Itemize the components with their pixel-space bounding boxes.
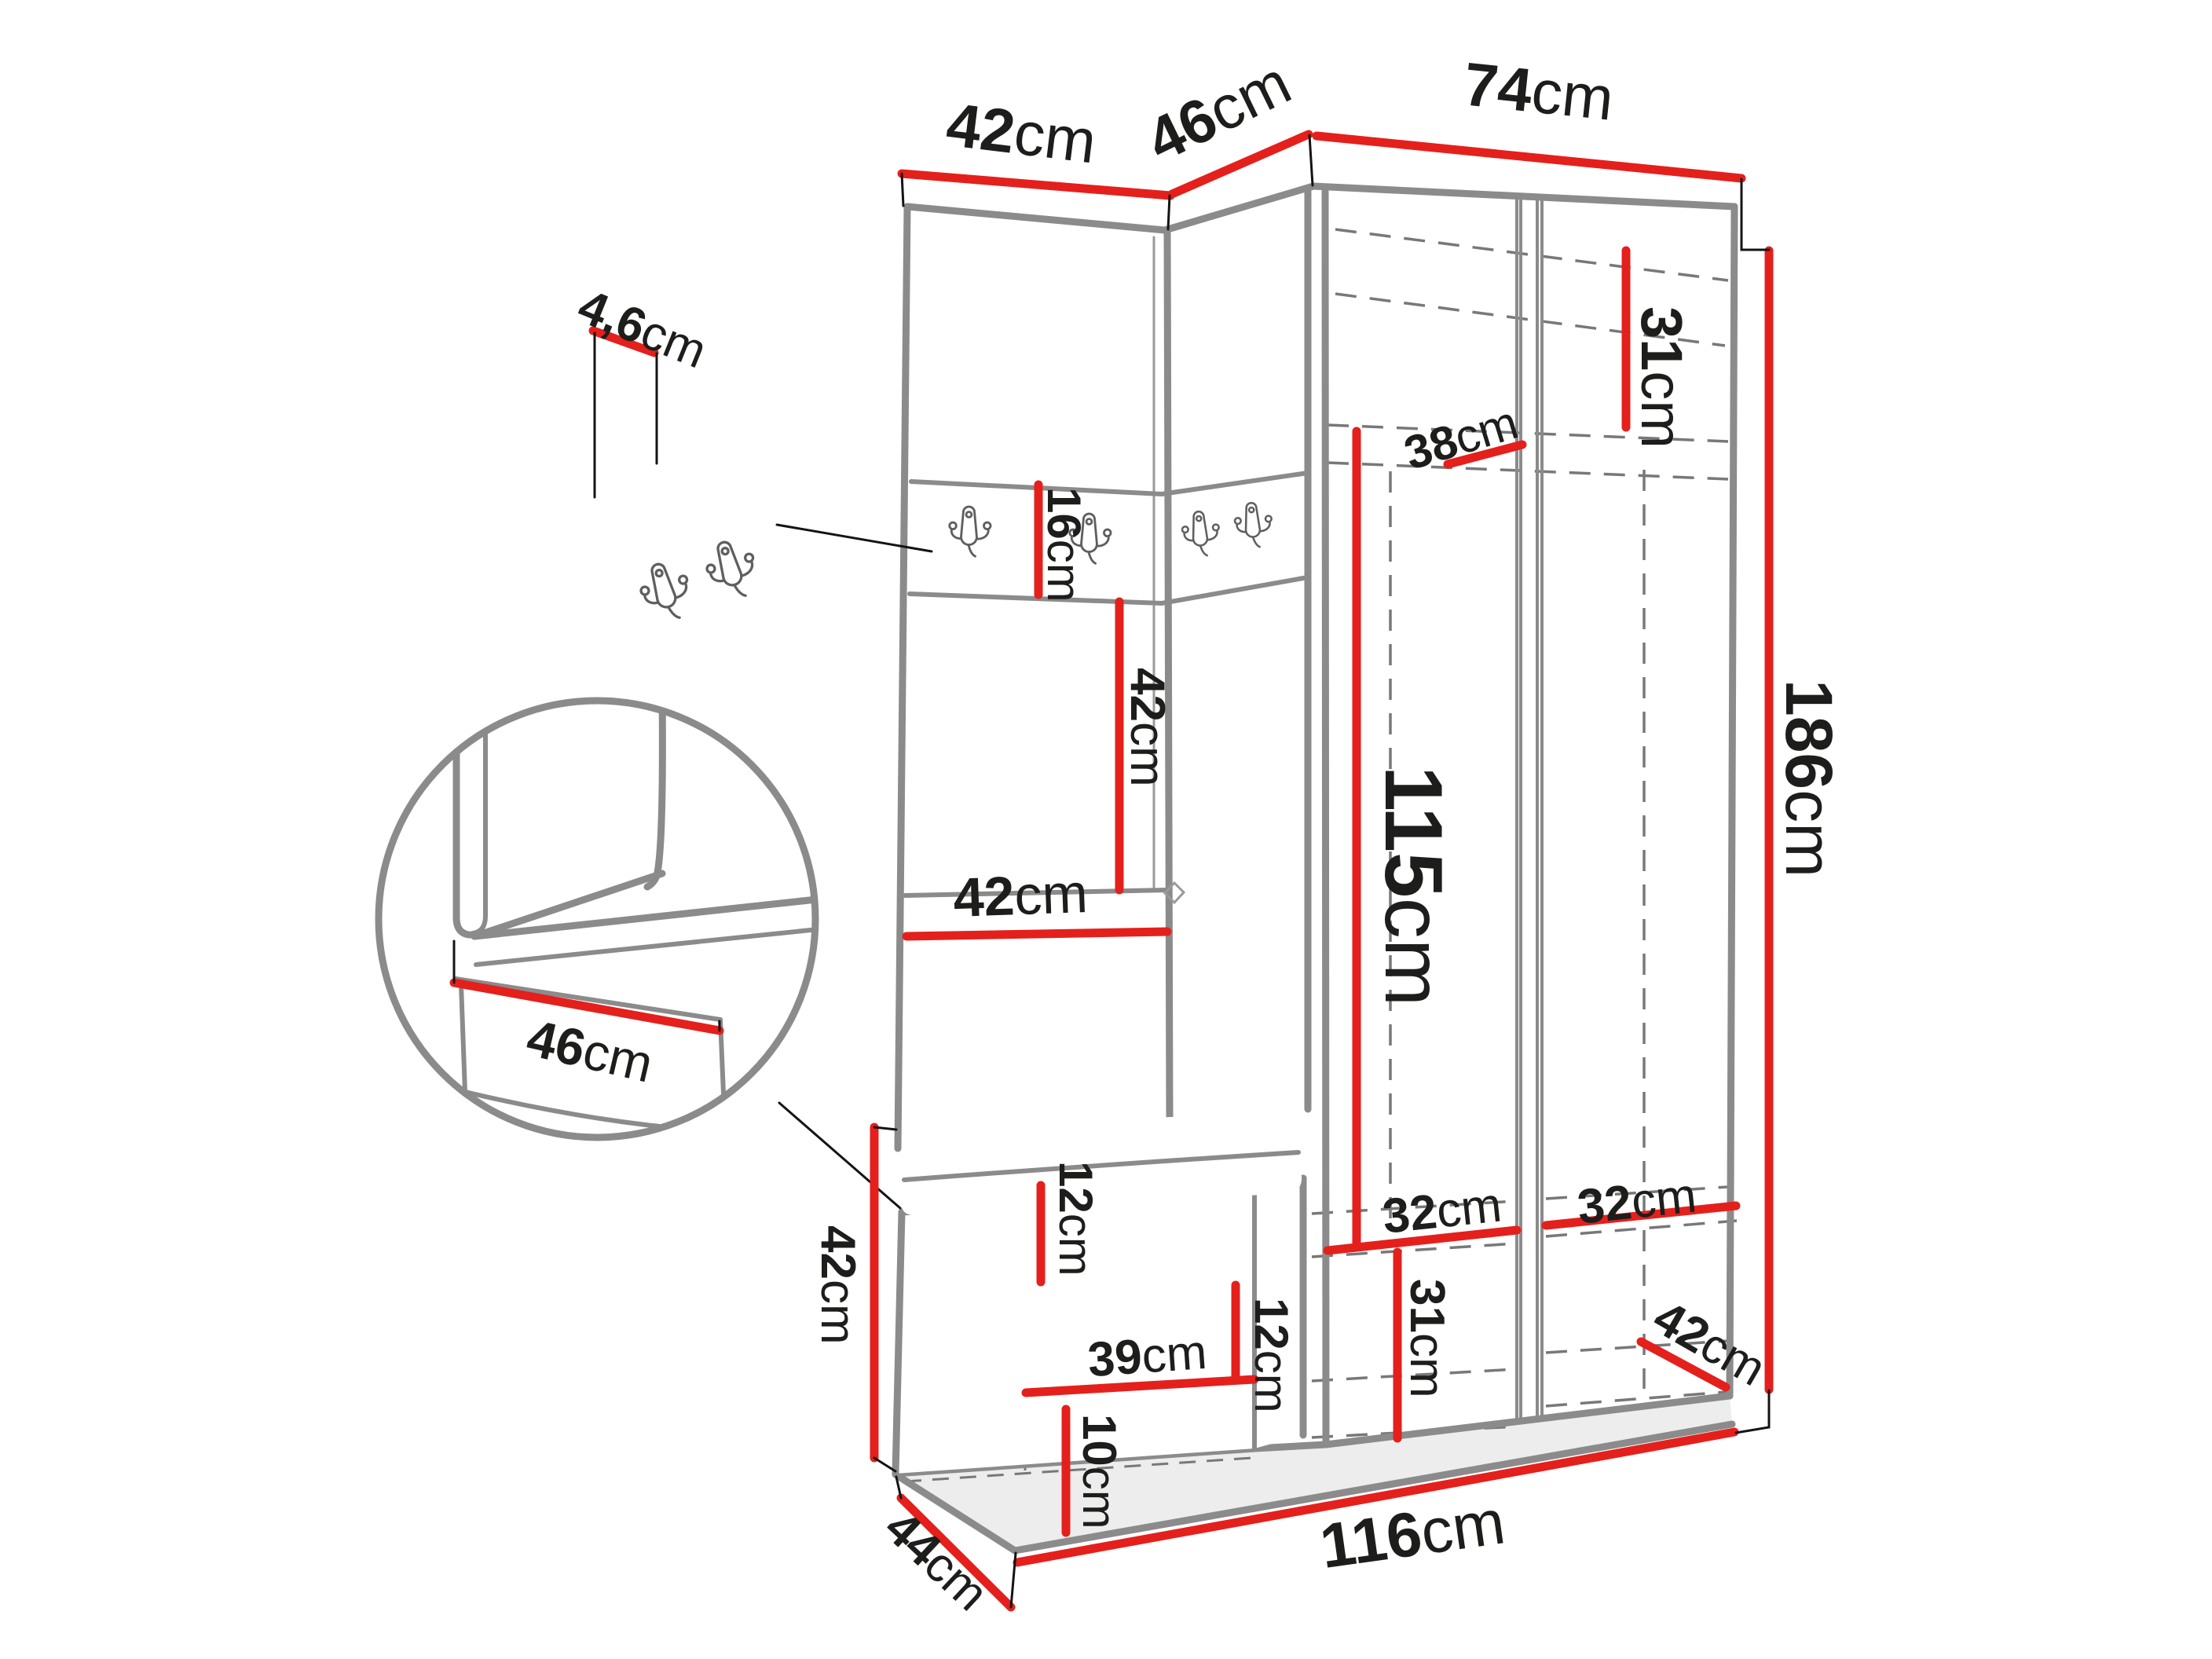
label-bench-top-thickness: 12cm [1049,1161,1102,1276]
label-top-left-width: 42cm [943,90,1100,177]
label-hook-strip-height: 16cm [1038,487,1090,602]
label-bench-height: 42cm [811,1225,865,1345]
label-top-compartment-height: 31cm [1629,306,1694,449]
label-upper-shelf-gap: 42cm [1120,668,1174,787]
edge-wardrobe-right [1730,207,1734,1396]
label-bench-inner-width: 39cm [1086,1325,1209,1387]
label-top-corner-width: 46cm [1136,47,1301,175]
dim-line-42-shelf [906,932,1167,936]
hook-panel-detail [588,423,773,694]
label-middle-shelf-width: 42cm [952,862,1089,928]
pointer-circle-to-bench [779,1103,900,1208]
label-bench-plinth-height: 10cm [1073,1414,1126,1529]
hook-panel-side [588,499,613,694]
hook-panel-front [609,423,773,682]
label-top-right-width: 74cm [1460,49,1617,133]
label-bottom-compartment-height: 31cm [1400,1279,1454,1398]
edge-wardrobe-left [1325,192,1326,1445]
dim-line-74-top [1317,136,1741,178]
dim-line-42-top [902,174,1170,196]
label-total-height: 186cm [1772,679,1846,877]
label-bench-inner-height: 12cm [1245,1298,1298,1413]
label-hanging-height: 115cm [1368,766,1459,1006]
dimension-diagram: 42cm 46cm 74cm 4,6cm 16cm 42cm 42cm 38cm… [0,0,2212,1659]
label-panel-thickness: 4,6cm [570,279,713,379]
diagram-canvas: 42cm 46cm 74cm 4,6cm 16cm 42cm 42cm 38cm… [0,0,2212,1659]
